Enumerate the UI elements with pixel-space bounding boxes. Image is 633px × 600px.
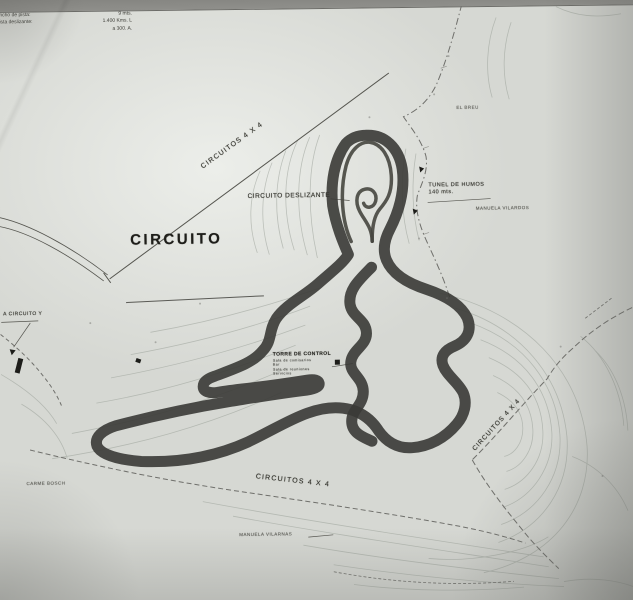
control-tower-marker xyxy=(335,360,340,365)
page-title: CIRCUITO xyxy=(130,230,222,248)
photo-of-map: CIRCUITO Longitud Circuito asfalto:3.350… xyxy=(0,0,633,600)
label-manuela-vilardos: MANUELA VILARDOS xyxy=(476,205,530,211)
label-manuela-vilarnas: MANUELA VILARNAS xyxy=(239,531,292,537)
label-circuito-deslizante: CIRCUITO DESLIZANTE xyxy=(247,192,330,200)
boundary-ticks xyxy=(421,66,449,234)
tunel-line2: 140 mts. xyxy=(428,189,484,197)
arrow-marker xyxy=(10,349,16,355)
label-tunel-de-humos: TUNEL DE HUMOS 140 mts. xyxy=(428,182,484,197)
tunel-line1: TUNEL DE HUMOS xyxy=(428,182,484,190)
arrow-marker xyxy=(419,166,424,172)
torre-line: Servicios xyxy=(273,371,331,376)
edge-bar-marker xyxy=(15,358,24,374)
label-el-breu: EL BREU xyxy=(456,105,479,110)
track-main-loop xyxy=(92,134,471,463)
circuit-map: CIRCUITO Longitud Circuito asfalto:3.350… xyxy=(0,0,633,600)
map-linework xyxy=(0,0,633,600)
control-tower-legend: TORRE DE CONTROL Sala de comisarios Bar … xyxy=(273,352,332,377)
label-carme-bosch: CARME BOSCH xyxy=(26,481,65,487)
label-a-circuito: A CIRCUITO Y xyxy=(3,311,42,318)
roads xyxy=(0,72,495,542)
contour-lines xyxy=(0,6,633,597)
start-marker xyxy=(135,358,141,363)
map-marks xyxy=(6,53,604,485)
track-outline xyxy=(92,134,471,463)
boundary-dashes xyxy=(0,2,633,590)
